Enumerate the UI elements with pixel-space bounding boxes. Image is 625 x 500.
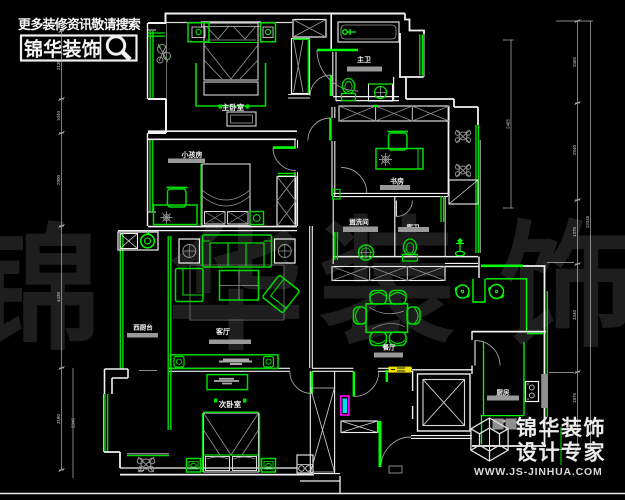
svg-text:3465: 3465 (572, 56, 577, 67)
svg-text:盥洗间: 盥洗间 (349, 217, 369, 226)
svg-text:主卫: 主卫 (357, 55, 371, 64)
svg-text:更多装修资讯敬请搜索: 更多装修资讯敬请搜索 (18, 17, 141, 32)
svg-text:饰: 饰 (499, 211, 625, 363)
svg-text:设计专家: 设计专家 (516, 441, 606, 465)
svg-text:1040: 1040 (56, 110, 61, 121)
svg-text:1370: 1370 (572, 226, 577, 237)
svg-text:2130: 2130 (56, 59, 61, 70)
svg-text:小孩房: 小孩房 (181, 150, 203, 159)
svg-text:4430: 4430 (56, 291, 61, 302)
svg-text:13345: 13345 (585, 215, 590, 228)
svg-text:锦华装饰: 锦华装饰 (516, 416, 606, 440)
svg-text:西厨台: 西厨台 (133, 323, 153, 332)
svg-text:2900: 2900 (56, 174, 61, 185)
svg-text:3340: 3340 (572, 309, 577, 320)
svg-text:3180: 3180 (56, 413, 61, 424)
svg-text:2345: 2345 (71, 417, 76, 428)
svg-text:书房: 书房 (390, 177, 404, 186)
svg-text:锦: 锦 (0, 214, 101, 366)
svg-text:客厅: 客厅 (215, 327, 230, 336)
svg-text:2940: 2940 (572, 144, 577, 155)
svg-text:2465: 2465 (506, 118, 511, 129)
svg-text:餐厅: 餐厅 (382, 343, 397, 352)
svg-text:主卧室: 主卧室 (222, 102, 245, 112)
svg-text:WWW.JS-JINHUA.COM: WWW.JS-JINHUA.COM (474, 466, 603, 478)
svg-text:厨房: 厨房 (497, 388, 511, 397)
svg-text:锦华装饰: 锦华装饰 (24, 38, 101, 61)
svg-text:1875: 1875 (572, 392, 577, 403)
svg-text:次卧室: 次卧室 (219, 399, 242, 409)
